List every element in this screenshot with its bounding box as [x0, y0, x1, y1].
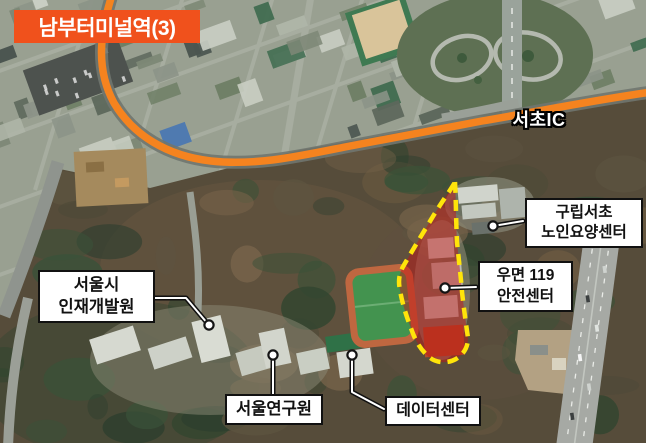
callout-line: 노인요양센터: [541, 223, 627, 243]
construction-detail: [115, 178, 129, 188]
callout-injae: 서울시 인재개발원: [38, 270, 155, 323]
construction-site: [74, 148, 149, 207]
marker-dot: [488, 221, 497, 230]
station-badge-label: 남부터미널역(3): [38, 12, 175, 42]
callout-line: 우면 119: [497, 266, 555, 286]
annotated-satellite-map: 남부터미널역(3) 서초IC 서울시 인재개발원 구립서초 노인요양센터 우면 …: [0, 0, 646, 443]
callout-line: 서울시: [74, 275, 120, 296]
callout-datacenter: 데이터센터: [385, 396, 481, 426]
callout-line: 인재개발원: [59, 297, 135, 318]
construction-detail: [86, 162, 104, 173]
marker-dot: [347, 350, 356, 359]
road-label-seocho-ic: 서초IC: [503, 106, 575, 132]
callout-gurip: 구립서초 노인요양센터: [525, 198, 643, 248]
marker-dot: [204, 320, 213, 329]
marker-dot: [268, 350, 277, 359]
marker-dot: [440, 283, 449, 292]
callout-line: 서울연구원: [236, 399, 312, 420]
callout-line: 구립서초: [555, 203, 612, 223]
callout-line: 데이터센터: [396, 401, 470, 422]
station-badge: 남부터미널역(3): [14, 10, 200, 43]
callout-research: 서울연구원: [225, 394, 323, 425]
callout-umyeon: 우면 119 안전센터: [478, 261, 573, 312]
callout-line: 안전센터: [497, 287, 554, 307]
